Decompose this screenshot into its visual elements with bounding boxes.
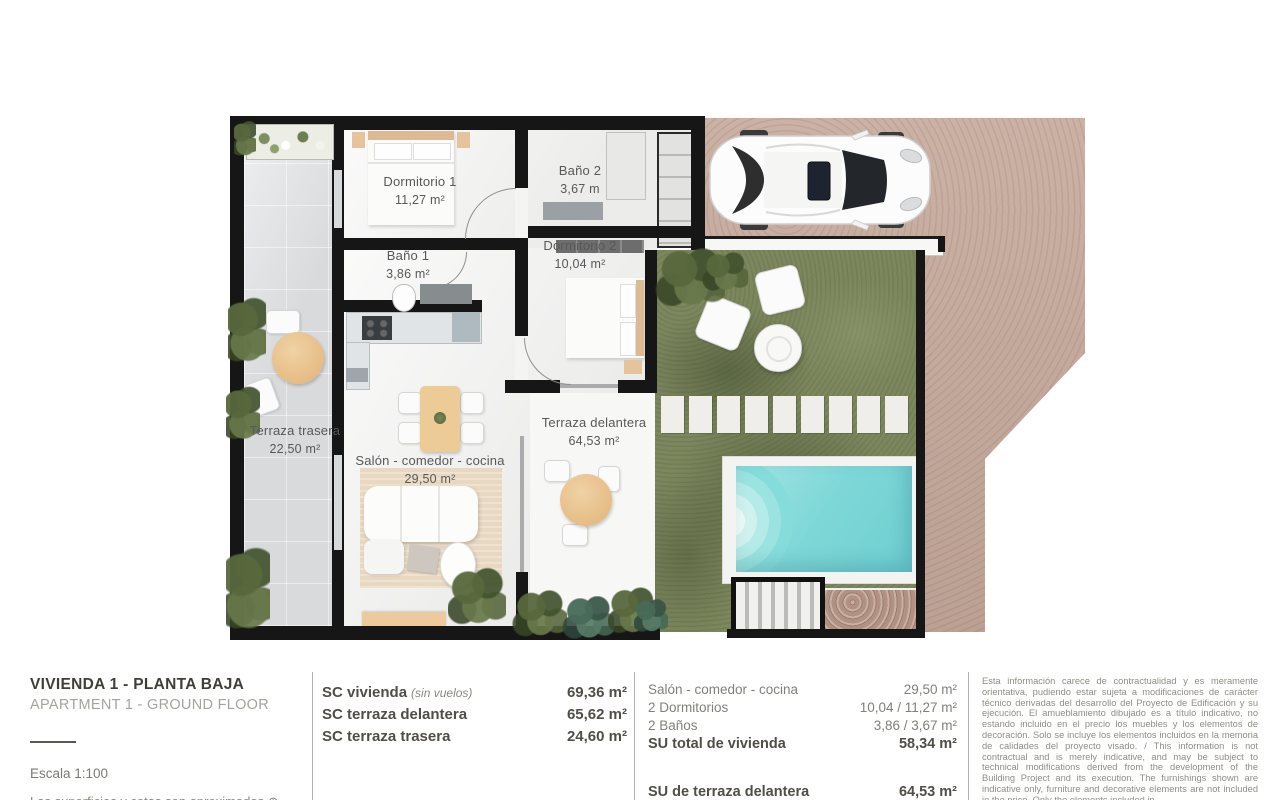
salon-tree bbox=[448, 566, 506, 628]
su-label: 2 Baños bbox=[648, 718, 698, 733]
su-row-terraza-delantera: SU de terraza delantera 64,53 m² bbox=[648, 784, 957, 800]
sc-value: 69,36 m² bbox=[567, 684, 627, 701]
su-row-dormitorios: 2 Dormitorios 10,04 / 11,27 m² bbox=[648, 700, 957, 715]
room-label-dormitorio1: Dormitorio 1 11,27 m² bbox=[345, 172, 495, 210]
su-label: Salón - comedor - cocina bbox=[648, 682, 798, 697]
title-rule bbox=[30, 741, 76, 743]
su-value: 29,50 m² bbox=[904, 682, 957, 697]
rear-window bbox=[334, 170, 342, 228]
garden-right-wall bbox=[916, 250, 925, 632]
sheet-title: VIVIENDA 1 - PLANTA BAJA bbox=[30, 676, 244, 694]
toilet-bath1 bbox=[392, 284, 416, 312]
su-label: 2 Dormitorios bbox=[648, 700, 728, 715]
su-value: 10,04 / 11,27 m² bbox=[860, 700, 957, 715]
vanity-bath1 bbox=[420, 284, 472, 304]
su-label: SU total de vivienda bbox=[648, 736, 786, 752]
su-row-salon: Salón - comedor - cocina 29,50 m² bbox=[648, 682, 957, 697]
legal-disclaimer: Esta información carece de contractualid… bbox=[982, 676, 1258, 800]
scale-label: Escala 1:100 bbox=[30, 766, 108, 781]
floorplan-sheet: Dormitorio 1 11,27 m² Baño 2 3,67 m Dorm… bbox=[0, 0, 1280, 800]
rear-terrace-table bbox=[272, 332, 324, 384]
sc-label: SC terraza trasera bbox=[322, 728, 450, 745]
room-label-bano2: Baño 2 3,67 m bbox=[530, 161, 630, 199]
sc-value: 65,62 m² bbox=[567, 706, 627, 723]
room-label-salon: Salón - comedor - cocina 29,50 m² bbox=[330, 451, 530, 489]
border-plant-1 bbox=[512, 590, 567, 638]
garden-sprig bbox=[702, 252, 748, 292]
su-row-banos: 2 Baños 3,86 / 3,67 m² bbox=[648, 718, 957, 733]
garden-bottom-wall bbox=[727, 629, 925, 638]
tv-bench bbox=[362, 612, 446, 626]
border-plant-4 bbox=[634, 598, 668, 634]
border-plant-2 bbox=[562, 596, 614, 640]
su-row-total: SU total de vivienda 58,34 m² bbox=[648, 736, 957, 752]
room-label-dormitorio2: Dormitorio 2 10,04 m² bbox=[520, 236, 640, 274]
clipped-footnote: Las superficies y cotas son aproximadas … bbox=[30, 794, 300, 800]
salon-terrace-wall-a bbox=[505, 380, 560, 393]
pool-stairs bbox=[731, 577, 825, 634]
vanity-bath2 bbox=[543, 202, 603, 220]
room-label-bano1: Baño 1 3,86 m² bbox=[352, 246, 464, 284]
hob-icon bbox=[362, 316, 392, 340]
pool-water bbox=[736, 466, 912, 572]
front-terrace-table bbox=[560, 474, 612, 526]
su-value: 3,86 / 3,67 m² bbox=[874, 718, 957, 733]
shrub-corner-top bbox=[234, 118, 256, 160]
shrub-left-1 bbox=[228, 292, 266, 370]
car-icon bbox=[706, 128, 934, 232]
divider-2 bbox=[634, 672, 635, 800]
planter-box bbox=[246, 124, 334, 160]
sc-row-vivienda: SC vivienda(sin vuelos) 69,36 m² bbox=[322, 684, 627, 701]
sheet-subtitle: APARTMENT 1 - GROUND FLOOR bbox=[30, 697, 269, 713]
floor-plan: Dormitorio 1 11,27 m² Baño 2 3,67 m Dorm… bbox=[0, 0, 1280, 668]
sc-row-terraza-trasera: SC terraza trasera 24,60 m² bbox=[322, 728, 627, 745]
sc-label: SC vivienda bbox=[322, 684, 407, 701]
chaise bbox=[364, 540, 404, 574]
su-value: 58,34 m² bbox=[899, 736, 957, 752]
hall-door-opening bbox=[515, 188, 528, 238]
sofa bbox=[364, 486, 478, 542]
sc-row-terraza-delantera: SC terraza delantera 65,62 m² bbox=[322, 706, 627, 723]
gravel-patch bbox=[825, 588, 917, 631]
outer-wall-right-top bbox=[691, 116, 705, 250]
shrub-left-3 bbox=[226, 540, 270, 640]
divider-3 bbox=[968, 672, 969, 800]
pergola-end-post bbox=[938, 236, 945, 252]
salon-terrace-wall-b bbox=[618, 380, 657, 393]
room-label-terraza-delantera: Terraza delantera 64,53 m² bbox=[514, 413, 674, 451]
divider-1 bbox=[312, 672, 313, 800]
pouf bbox=[406, 544, 439, 574]
su-label: SU de terraza delantera bbox=[648, 784, 809, 800]
sc-label: SC terraza delantera bbox=[322, 706, 467, 723]
sc-value: 24,60 m² bbox=[567, 728, 627, 745]
sc-note: (sin vuelos) bbox=[411, 686, 472, 700]
su-value: 64,53 m² bbox=[899, 784, 957, 800]
